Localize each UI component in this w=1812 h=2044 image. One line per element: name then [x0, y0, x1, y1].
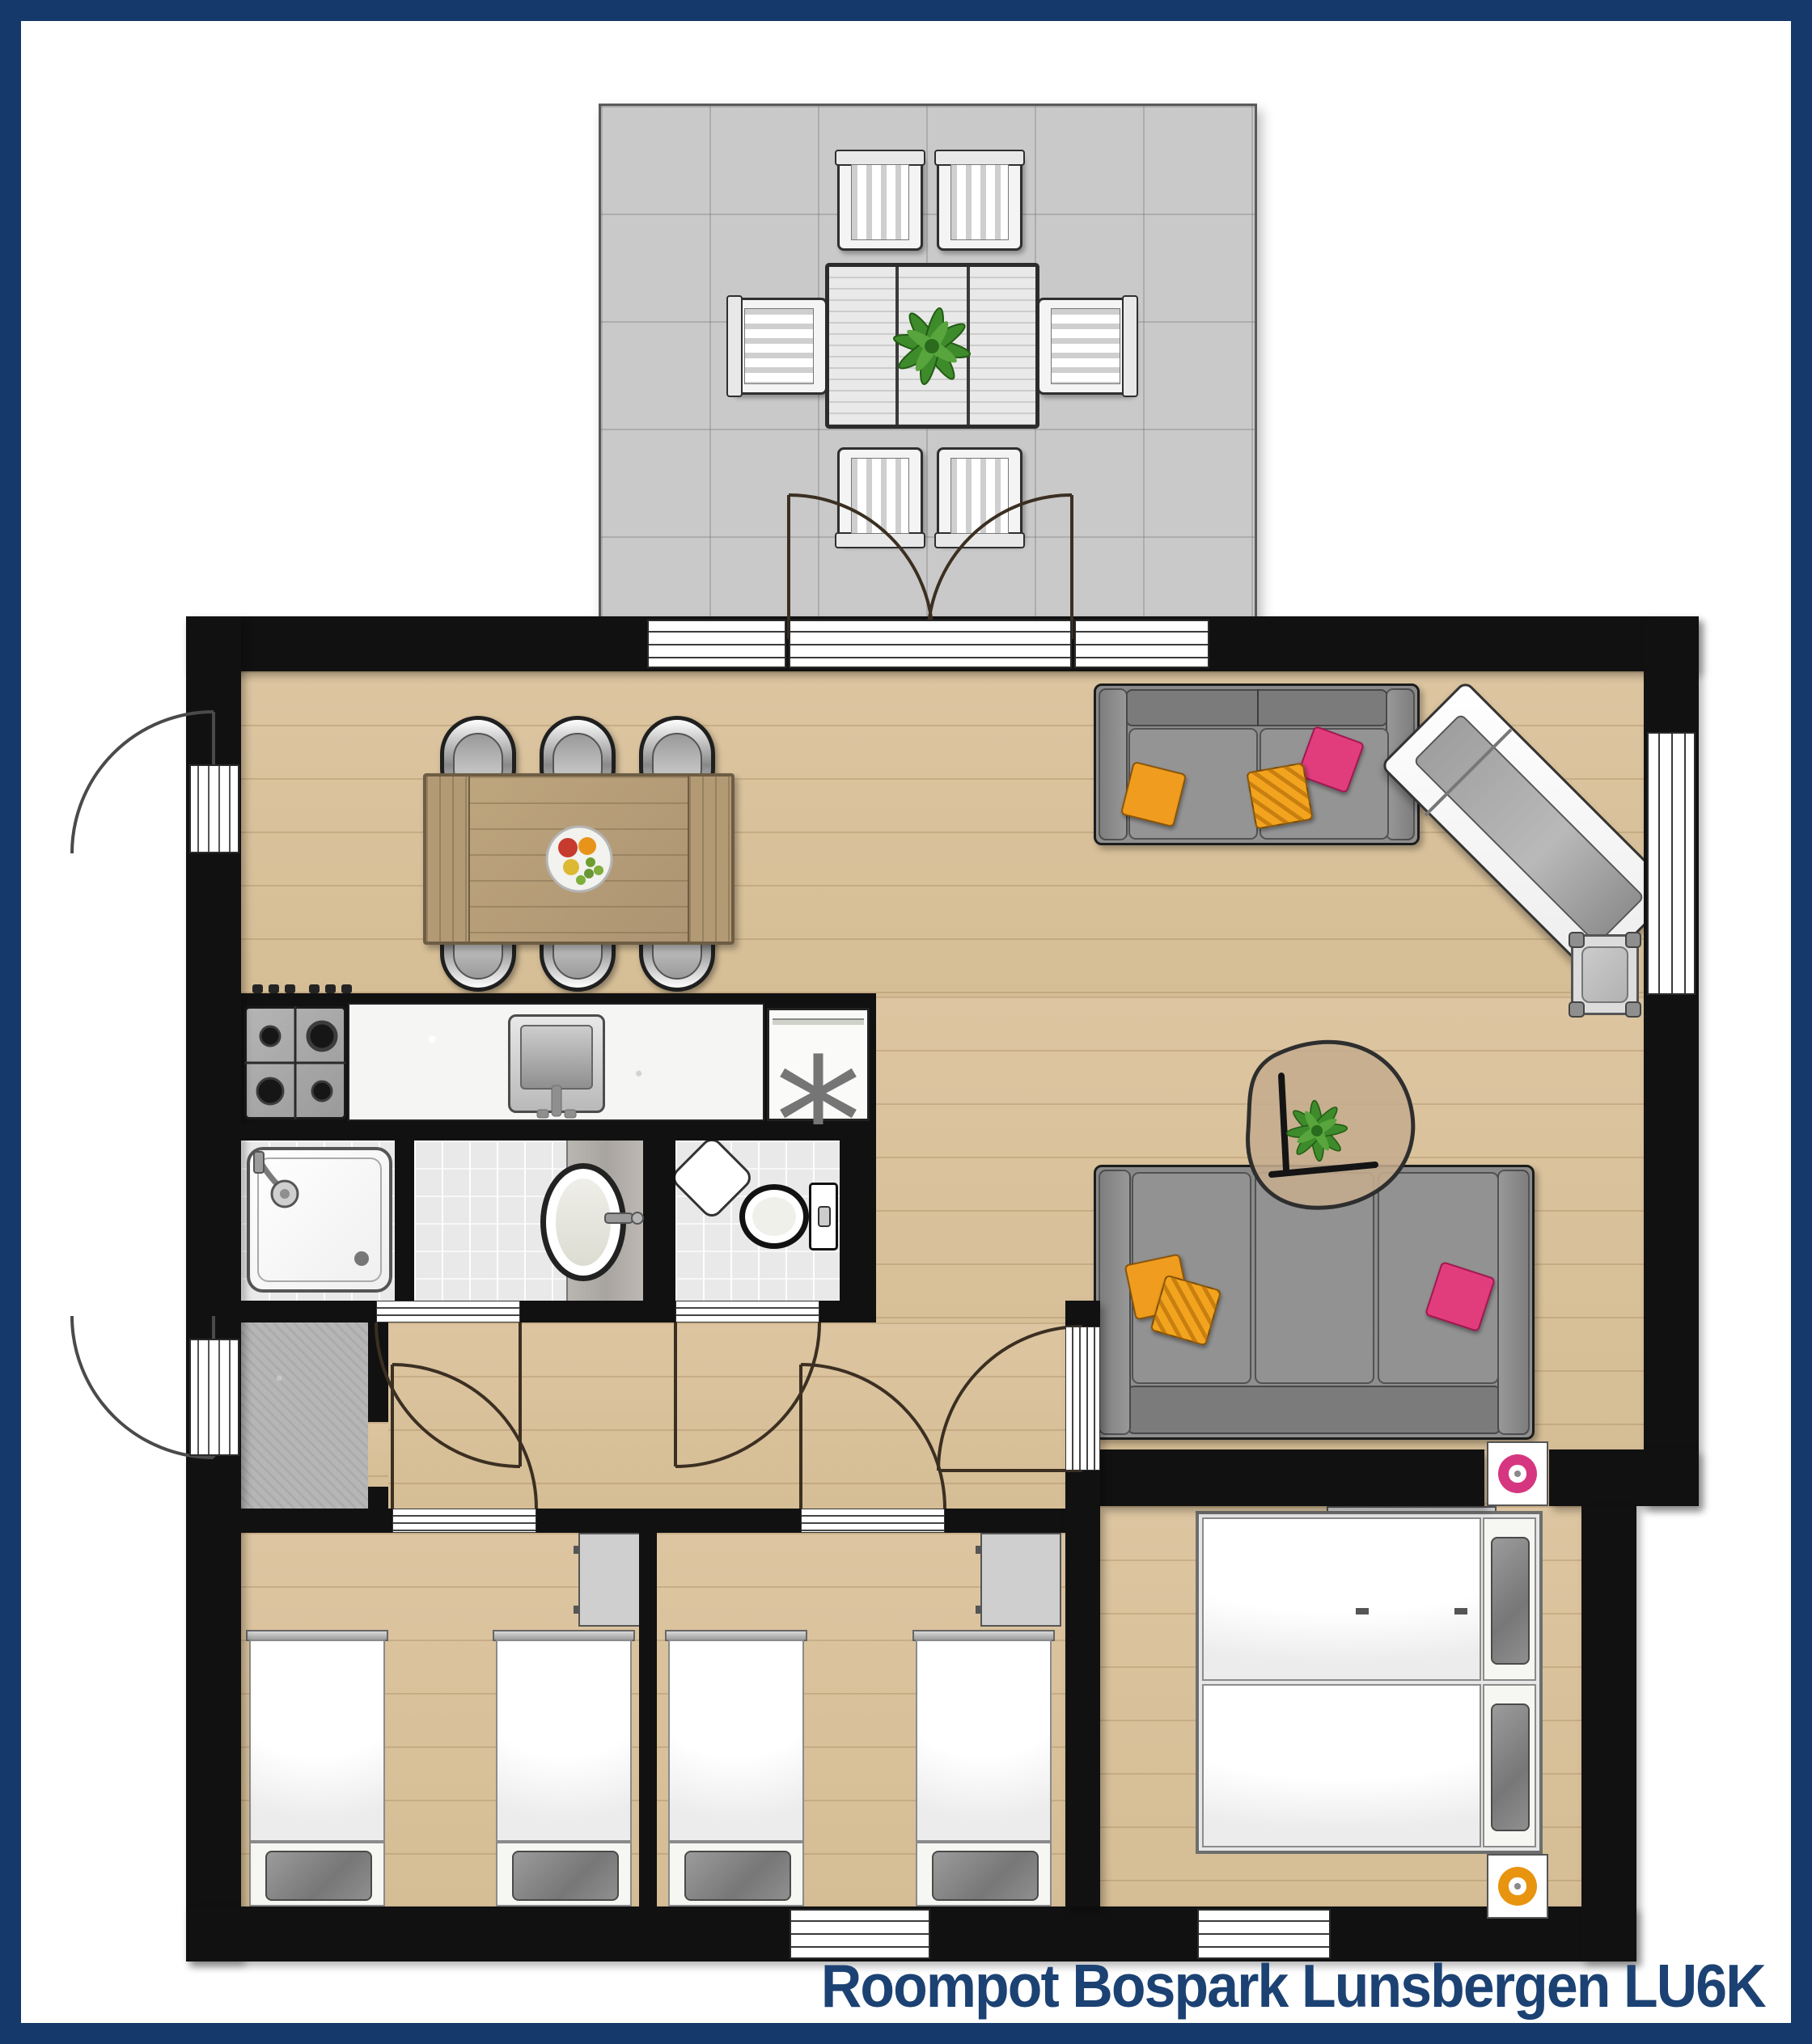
pillow — [1491, 1537, 1530, 1665]
chair-back — [726, 295, 743, 397]
sofa-arm — [1497, 1170, 1530, 1435]
sofa-back-seam — [1257, 689, 1259, 726]
chair-slats — [1051, 308, 1120, 384]
hallway-floor — [388, 1322, 1065, 1509]
pillow — [932, 1851, 1039, 1901]
outdoor-dining-table — [825, 263, 1039, 429]
chair-back — [835, 532, 925, 548]
pillow — [1491, 1703, 1530, 1831]
single-bed — [493, 1630, 635, 1909]
bedroom1-door-threshold — [392, 1509, 536, 1533]
table-plank-divider — [895, 267, 899, 425]
stool-leg — [1625, 932, 1641, 948]
stool-leg — [1569, 1001, 1585, 1018]
wardrobe-hinge — [976, 1606, 982, 1614]
pillow-panel — [1483, 1684, 1536, 1847]
duvet — [249, 1640, 385, 1842]
toilet-door-threshold — [675, 1301, 819, 1322]
stove-knob — [269, 984, 279, 993]
wall-step — [1549, 1449, 1699, 1506]
ring-center — [1514, 1471, 1521, 1477]
chair-back — [934, 532, 1025, 548]
sofa-seat-cushion — [1255, 1172, 1374, 1384]
outdoor-chair — [937, 154, 1022, 251]
chair-slats — [851, 164, 909, 240]
mattress — [1202, 1684, 1481, 1847]
stove-knob — [341, 984, 352, 993]
stove-knob — [285, 984, 295, 993]
chair-back — [835, 150, 925, 166]
chair-back — [934, 150, 1025, 166]
window-top-right — [1074, 620, 1209, 668]
chair-slats — [950, 458, 1009, 534]
dining-table — [423, 773, 735, 945]
stool-cushion — [1581, 946, 1628, 1003]
wall-right-lower — [1581, 1506, 1636, 1961]
ring-center — [1514, 1883, 1521, 1890]
bedroom2-door-threshold — [801, 1509, 945, 1533]
desk-leg — [1454, 1608, 1467, 1614]
window-right — [1647, 732, 1696, 995]
outdoor-chair — [730, 298, 828, 395]
wall-bath-toilet-divider — [643, 1140, 675, 1301]
wardrobe-hinge — [976, 1546, 982, 1554]
outdoor-chair — [837, 154, 923, 251]
chair-back — [1122, 295, 1138, 397]
front-door-frame — [189, 1339, 239, 1456]
stove-knob — [252, 984, 263, 993]
toilet-bowl — [739, 1184, 809, 1249]
wall-bedroom-divider — [639, 1533, 657, 1906]
duvet — [496, 1640, 632, 1842]
desk-leg — [1356, 1608, 1369, 1614]
wall-toilet-right — [840, 1124, 876, 1322]
outdoor-chair — [1037, 298, 1134, 395]
duvet — [916, 1640, 1052, 1842]
pillow — [265, 1851, 372, 1901]
table-end-board — [688, 777, 731, 942]
wall-bath-top — [241, 1124, 876, 1140]
washbasin-bowl — [556, 1179, 611, 1266]
stove-knob — [309, 984, 320, 993]
decor-ring-orange — [1498, 1867, 1537, 1906]
double-bed — [1196, 1511, 1543, 1854]
side-door-frame — [189, 764, 239, 853]
wall-shower-divider — [395, 1140, 414, 1301]
wall-living-master — [1100, 1449, 1484, 1506]
kitchen-sink — [508, 1014, 605, 1113]
sofa-back-cushion — [1127, 1386, 1501, 1434]
stove-knob — [325, 984, 336, 993]
freezer-unit: * — [767, 1008, 870, 1121]
sofa-arm — [1099, 1170, 1131, 1435]
shower-tray-rim — [257, 1157, 382, 1282]
master-door-threshold — [1065, 1327, 1100, 1471]
duvet — [668, 1640, 804, 1842]
pillow-panel — [249, 1842, 385, 1906]
table-plank-divider — [967, 267, 970, 425]
wardrobe-hinge — [574, 1546, 580, 1554]
window-top-left — [647, 620, 786, 668]
sink-basin — [520, 1025, 593, 1090]
side-stool — [1571, 934, 1639, 1015]
toilet-seat — [752, 1197, 796, 1236]
plan-title: Roompot Bospark Lunsbergen LU6K — [821, 1951, 1765, 2021]
pillow — [512, 1851, 619, 1901]
terrace-door-sill — [789, 620, 1072, 668]
gas-stove — [244, 1006, 346, 1119]
stool-leg — [1625, 1001, 1641, 1018]
sofa-arm — [1099, 688, 1128, 840]
pillow-panel — [496, 1842, 632, 1906]
wardrobe — [578, 1533, 641, 1627]
washbasin — [540, 1163, 626, 1281]
chair-slats — [950, 164, 1009, 240]
chair-slats — [851, 458, 909, 534]
pillow-panel — [1483, 1517, 1536, 1681]
single-bed — [246, 1630, 388, 1909]
outdoor-chair — [937, 447, 1022, 544]
hall-opening-floor — [368, 1422, 388, 1487]
wardrobe — [980, 1533, 1061, 1627]
stool-leg — [1569, 932, 1585, 948]
toilet-cistern — [809, 1183, 838, 1251]
table-end-board — [426, 777, 470, 942]
mattress — [1202, 1517, 1481, 1681]
decor-ring-pink — [1498, 1454, 1537, 1493]
pillow-panel — [668, 1842, 804, 1906]
pillow — [684, 1851, 791, 1901]
chair-slats — [744, 308, 814, 384]
shower-tray — [247, 1147, 392, 1293]
outdoor-chair — [837, 447, 923, 544]
bathroom-door-threshold — [376, 1301, 520, 1322]
floor-plan: * — [0, 0, 1812, 2044]
entrance-hall-floor — [241, 1322, 368, 1509]
single-bed — [912, 1630, 1055, 1909]
pillow-panel — [916, 1842, 1052, 1906]
wardrobe-hinge — [574, 1606, 580, 1614]
pillow-orange-striped — [1246, 762, 1313, 829]
single-bed — [665, 1630, 807, 1909]
